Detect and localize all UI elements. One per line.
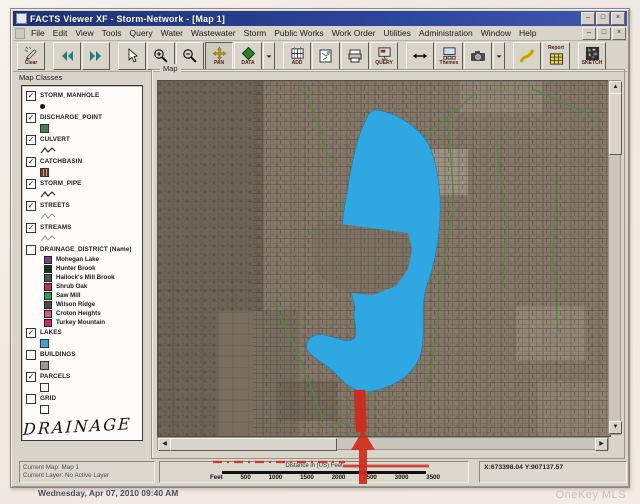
scale-ticks: Feet500100015002000250030003500 <box>210 474 440 481</box>
legend-label: PARCELS <box>40 373 70 380</box>
camera-button[interactable] <box>464 42 492 70</box>
sketch-button[interactable]: SKETCH <box>578 42 606 70</box>
mdi-close-button[interactable]: × <box>612 27 626 40</box>
district-label: Croton Heights <box>56 310 101 317</box>
discharge-point-symbol <box>40 124 49 133</box>
report-button[interactable]: Report <box>542 42 570 70</box>
menu-item-window[interactable]: Window <box>477 27 515 39</box>
sketch-button-label: SKETCH <box>582 61 603 66</box>
legend-label: CULVERT <box>40 136 70 143</box>
hscroll-thumb[interactable] <box>170 438 337 451</box>
legend-label: STREETS <box>40 202 70 209</box>
pan-button-label: PAN <box>214 61 224 66</box>
scale-tick: 2000 <box>332 474 346 481</box>
line-symbol <box>40 212 56 221</box>
scale-tick: 1000 <box>269 474 283 481</box>
legend-item-storm-pipe[interactable]: ✓STORM_PIPE <box>26 178 142 189</box>
scroll-right-button[interactable]: ▶ <box>595 438 608 451</box>
legend-label: DRAINAGE_DISTRICT (Name) <box>40 246 132 253</box>
report-flow-button[interactable] <box>513 42 541 70</box>
menu-item-administration[interactable]: Administration <box>415 27 477 39</box>
menu-item-help[interactable]: Help <box>515 27 540 39</box>
legend-item-buildings[interactable]: BUILDINGS <box>26 349 142 360</box>
checkbox-catchbasin[interactable]: ✓ <box>26 157 36 167</box>
checkbox-drainage-district-name[interactable] <box>26 245 36 255</box>
toolbar: ClearPANDATAADDQUERYThemesReportSKETCH <box>13 41 627 72</box>
legend-symbol-row <box>26 211 142 222</box>
pencil-icon <box>24 46 39 61</box>
legend-item-lakes[interactable]: ✓LAKES <box>26 327 142 338</box>
minimize-button[interactable]: – <box>581 12 595 25</box>
pan-button[interactable]: PAN <box>205 42 233 70</box>
lake-symbol <box>40 339 49 348</box>
map-group-label: Map <box>160 64 181 73</box>
legend-symbol-row <box>26 404 142 415</box>
drainage-district-hallock-s-mill-brook: Hallock's Mill Brook <box>26 273 142 282</box>
district-color-swatch <box>44 310 52 318</box>
menu-item-file[interactable]: File <box>27 27 49 39</box>
legend-item-streams[interactable]: ✓STREAMS <box>26 222 142 233</box>
data-button[interactable]: DATA <box>234 42 262 70</box>
district-label: Shrub Oak <box>56 283 87 290</box>
cursor-coordinates: X:673398.04 Y:907137.57 <box>484 464 622 471</box>
map-sheet-button[interactable] <box>312 42 340 70</box>
themes-button-label: Themes <box>440 61 459 66</box>
legend-symbol-row <box>26 382 142 393</box>
map-classes-title: Map Classes <box>15 71 153 84</box>
district-label: Hallock's Mill Brook <box>56 274 115 281</box>
drainage-district-croton-heights: Croton Heights <box>26 309 142 318</box>
district-label: Wilson Ridge <box>56 301 95 308</box>
print-button[interactable] <box>341 42 369 70</box>
grid-icon <box>290 46 305 61</box>
legend-symbol-row <box>26 338 142 349</box>
add-button[interactable]: ADD <box>283 42 311 70</box>
manhole-dot-symbol <box>40 104 45 109</box>
aerial-map-image <box>158 81 610 436</box>
menu-item-water[interactable]: Water <box>157 27 187 39</box>
window-title: FACTS Viewer XF - Storm-Network - [Map 1… <box>30 14 225 24</box>
district-label: Saw Mill <box>56 292 80 299</box>
themes-button[interactable]: Themes <box>435 42 463 70</box>
drainage-district-mohegan-lake: Mohegan Lake <box>26 255 142 264</box>
scale-tick: 500 <box>240 474 250 481</box>
vscroll-thumb[interactable] <box>609 93 622 155</box>
measure-icon <box>412 48 428 64</box>
scale-label: Distance in (US) Feet <box>160 463 468 469</box>
legend-symbol-row <box>26 233 142 244</box>
footer-datetime: Wednesday, Apr 07, 2010 09:40 AM <box>38 488 178 498</box>
menu-item-view[interactable]: View <box>71 27 97 39</box>
legend-label: LAKES <box>40 329 62 336</box>
legend-symbol-row <box>26 145 142 156</box>
mdi-window-controls: – □ × <box>582 27 626 40</box>
legend-item-culvert[interactable]: ✓CULVERT <box>26 134 142 145</box>
district-color-swatch <box>44 274 52 282</box>
printer-icon <box>347 48 363 64</box>
app-window: FACTS Viewer XF - Storm-Network - [Map 1… <box>10 8 630 488</box>
pointer-icon <box>124 48 140 64</box>
drainage-district-wilson-ridge: Wilson Ridge <box>26 300 142 309</box>
legend-label: STORM_PIPE <box>40 180 81 187</box>
data-dropdown[interactable] <box>263 42 275 70</box>
map-canvas[interactable] <box>157 80 611 437</box>
current-layer-value: No Active Layer <box>65 472 109 479</box>
scale-tick: Feet <box>210 474 223 481</box>
coordinates-panel: X:673398.04 Y:907137.57 <box>479 461 627 483</box>
window-controls: – □ × <box>581 12 625 25</box>
status-bar: Current Map: Map 1 Current Layer: No Act… <box>13 459 627 485</box>
arrows-right-icon <box>88 48 104 64</box>
checkbox-streams[interactable]: ✓ <box>26 223 36 233</box>
caret-icon <box>494 51 504 61</box>
catchbasin-symbol <box>40 168 49 177</box>
outline-symbol <box>40 405 49 414</box>
previous-view-button[interactable] <box>53 42 81 70</box>
legend-label: CATCHBASIN <box>40 158 82 165</box>
checkbox-parcels[interactable]: ✓ <box>26 372 36 382</box>
legend-item-streets[interactable]: ✓STREETS <box>26 200 142 211</box>
query-icon <box>377 46 392 61</box>
scale-tick: 3500 <box>426 474 440 481</box>
legend-label: GRID <box>40 395 56 402</box>
data-icon <box>241 46 256 61</box>
clear-button-label: Clear <box>25 61 38 66</box>
district-label: Turkey Mountain <box>56 319 105 326</box>
query-button[interactable]: QUERY <box>370 42 398 70</box>
current-map-label: Current Map: <box>23 464 60 471</box>
map-classes-list: ✓STORM_MANHOLE✓DISCHARGE_POINT✓CULVERT✓C… <box>21 85 143 441</box>
district-color-swatch <box>44 301 52 309</box>
legend-symbol-row <box>26 189 142 200</box>
legend-item-storm-manhole[interactable]: ✓STORM_MANHOLE <box>26 90 142 101</box>
outline-symbol <box>40 383 49 392</box>
building-symbol <box>40 361 49 370</box>
query-button-label: QUERY <box>375 61 393 66</box>
menu-item-work-order[interactable]: Work Order <box>328 27 380 39</box>
checkbox-discharge-point[interactable]: ✓ <box>26 113 36 123</box>
map-horizontal-scrollbar[interactable]: ◀ ▶ <box>157 437 609 450</box>
menu-item-utilities[interactable]: Utilities <box>379 27 414 39</box>
checkbox-culvert[interactable]: ✓ <box>26 135 36 145</box>
legend-item-parcels[interactable]: ✓PARCELS <box>26 371 142 382</box>
legend-item-discharge-point[interactable]: ✓DISCHARGE_POINT <box>26 112 142 123</box>
title-bar: FACTS Viewer XF - Storm-Network - [Map 1… <box>13 11 627 26</box>
scale-bar-panel: Distance in (US) Feet Feet50010001500200… <box>159 461 469 483</box>
checkbox-lakes[interactable]: ✓ <box>26 328 36 338</box>
menu-item-storm[interactable]: Storm <box>240 27 271 39</box>
zoom-in-icon <box>153 48 169 64</box>
legend-item-catchbasin[interactable]: ✓CATCHBASIN <box>26 156 142 167</box>
current-map-value: Map 1 <box>62 464 80 471</box>
sketch-icon <box>585 46 600 61</box>
legend-symbol-row <box>26 101 142 112</box>
add-button-label: ADD <box>292 61 303 66</box>
menu-item-tools[interactable]: Tools <box>98 27 126 39</box>
district-color-swatch <box>44 292 52 300</box>
mdi-restore-button[interactable]: □ <box>597 27 611 40</box>
legend-item-drainage-district-name[interactable]: DRAINAGE_DISTRICT (Name) <box>26 244 142 255</box>
pan-icon <box>212 46 227 61</box>
swoosh-icon <box>519 48 535 64</box>
legend-item-grid[interactable]: GRID <box>26 393 142 404</box>
line-symbol <box>40 146 56 155</box>
measure-button[interactable] <box>406 42 434 70</box>
district-color-swatch <box>44 256 52 264</box>
mdi-minimize-button[interactable]: – <box>582 27 596 40</box>
legend-symbol-row <box>26 123 142 134</box>
checkbox-storm-pipe[interactable]: ✓ <box>26 179 36 189</box>
district-label: Hunter Brook <box>56 265 96 272</box>
scroll-down-button[interactable]: ▼ <box>609 421 622 434</box>
clear-button[interactable]: Clear <box>17 42 45 70</box>
menu-item-wastewater[interactable]: Wastewater <box>187 27 240 39</box>
camera-icon <box>470 48 486 64</box>
map-sheet-icon <box>318 48 334 64</box>
next-view-button[interactable] <box>82 42 110 70</box>
menu-item-public-works[interactable]: Public Works <box>270 27 327 39</box>
drainage-district-saw-mill: Saw Mill <box>26 291 142 300</box>
app-icon <box>16 13 27 24</box>
report-table-icon <box>549 51 564 66</box>
district-color-swatch <box>44 283 52 291</box>
camera-dropdown[interactable] <box>493 42 505 70</box>
zoom-out-icon <box>182 48 198 64</box>
line-symbol <box>40 190 56 199</box>
checkbox-storm-manhole[interactable]: ✓ <box>26 91 36 101</box>
map-classes-panel: Map Classes ✓STORM_MANHOLE✓DISCHARGE_POI… <box>15 71 153 455</box>
mdi-child-icon <box>15 28 25 39</box>
arrows-left-icon <box>59 48 75 64</box>
legend-symbol-row <box>26 167 142 178</box>
district-color-swatch <box>44 319 52 327</box>
current-map-panel: Current Map: Map 1 Current Layer: No Act… <box>19 461 155 483</box>
legend-label: STORM_MANHOLE <box>40 92 99 99</box>
photo-background: FACTS Viewer XF - Storm-Network - [Map 1… <box>0 0 640 504</box>
current-layer-label: Current Layer: <box>23 472 63 479</box>
drainage-district-turkey-mountain: Turkey Mountain <box>26 318 142 327</box>
line-symbol <box>40 234 56 243</box>
data-button-label: DATA <box>241 61 254 66</box>
caret-icon <box>264 51 274 61</box>
menu-item-edit[interactable]: Edit <box>49 27 72 39</box>
legend-label: BUILDINGS <box>40 351 76 358</box>
scale-tick: 1500 <box>300 474 314 481</box>
menu-item-query[interactable]: Query <box>125 27 156 39</box>
close-button[interactable]: × <box>611 12 625 25</box>
pointer-button[interactable] <box>118 42 146 70</box>
drainage-district-shrub-oak: Shrub Oak <box>26 282 142 291</box>
checkbox-grid[interactable] <box>26 394 36 404</box>
map-group: Map <box>151 69 625 459</box>
restore-button[interactable]: □ <box>596 12 610 25</box>
highlighted-parcel <box>354 390 366 432</box>
scale-tick: 2500 <box>363 474 377 481</box>
themes-icon <box>442 46 457 61</box>
district-label: Mohegan Lake <box>56 256 99 263</box>
legend-label: STREAMS <box>40 224 72 231</box>
drainage-district-hunter-brook: Hunter Brook <box>26 264 142 273</box>
map-vertical-scrollbar[interactable]: ▲ ▼ <box>608 80 621 435</box>
checkbox-buildings[interactable] <box>26 350 36 360</box>
watermark: OneKey MLS <box>556 489 626 501</box>
scale-tick: 3000 <box>395 474 409 481</box>
legend-symbol-row <box>26 360 142 371</box>
checkbox-streets[interactable]: ✓ <box>26 201 36 211</box>
district-color-swatch <box>44 265 52 273</box>
legend-label: DISCHARGE_POINT <box>40 114 102 121</box>
menu-bar: FileEditViewToolsQueryWaterWastewaterSto… <box>13 26 627 41</box>
